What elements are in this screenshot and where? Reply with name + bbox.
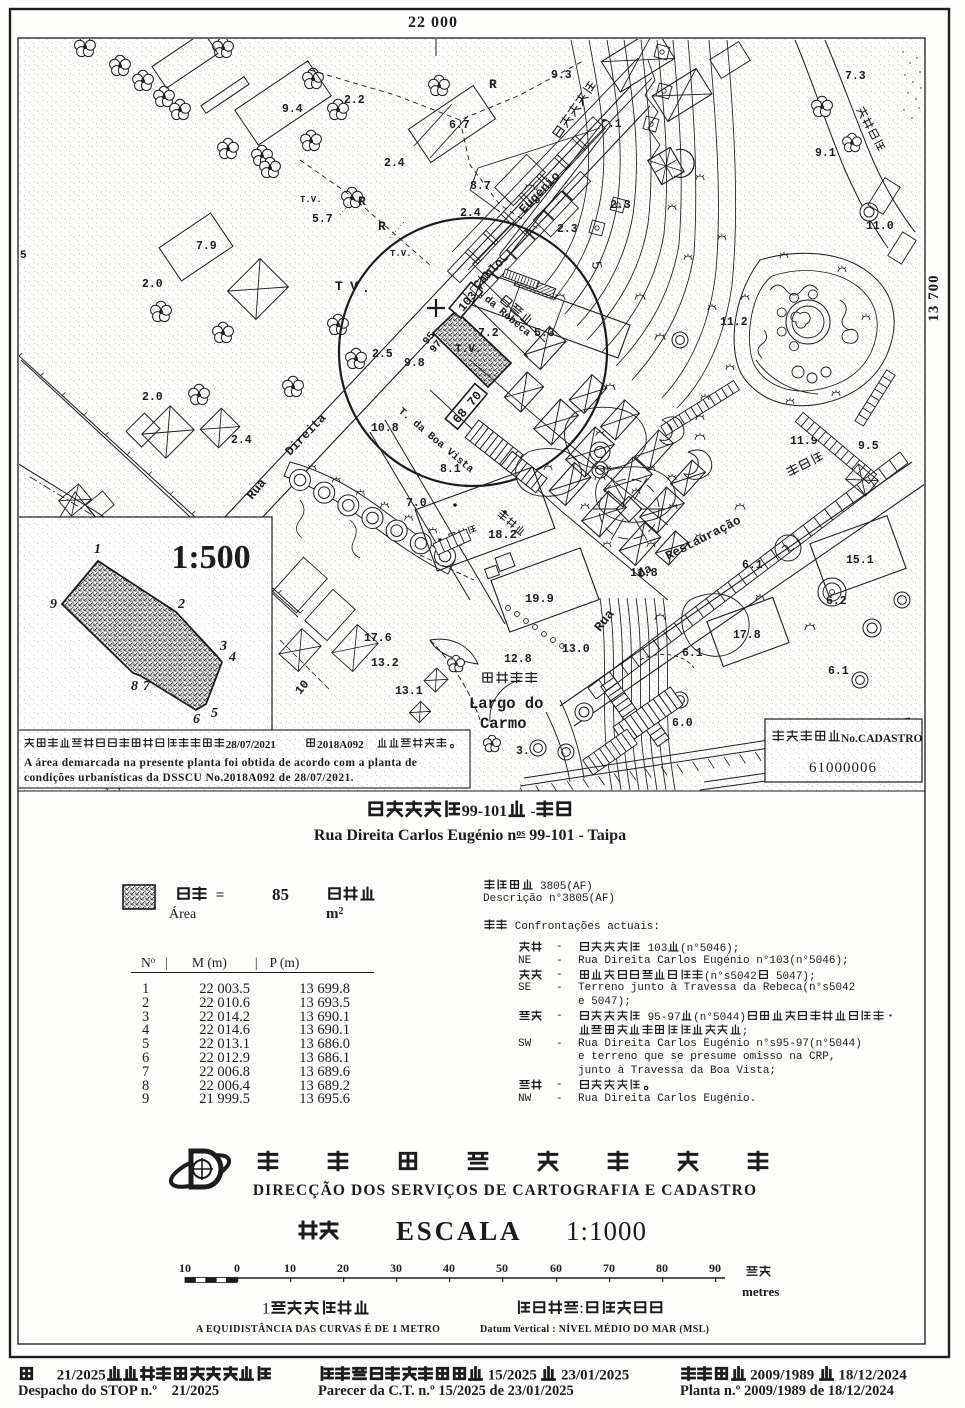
svg-text:13 700: 13 700 [926,274,942,321]
svg-text:22 000: 22 000 [408,14,458,31]
